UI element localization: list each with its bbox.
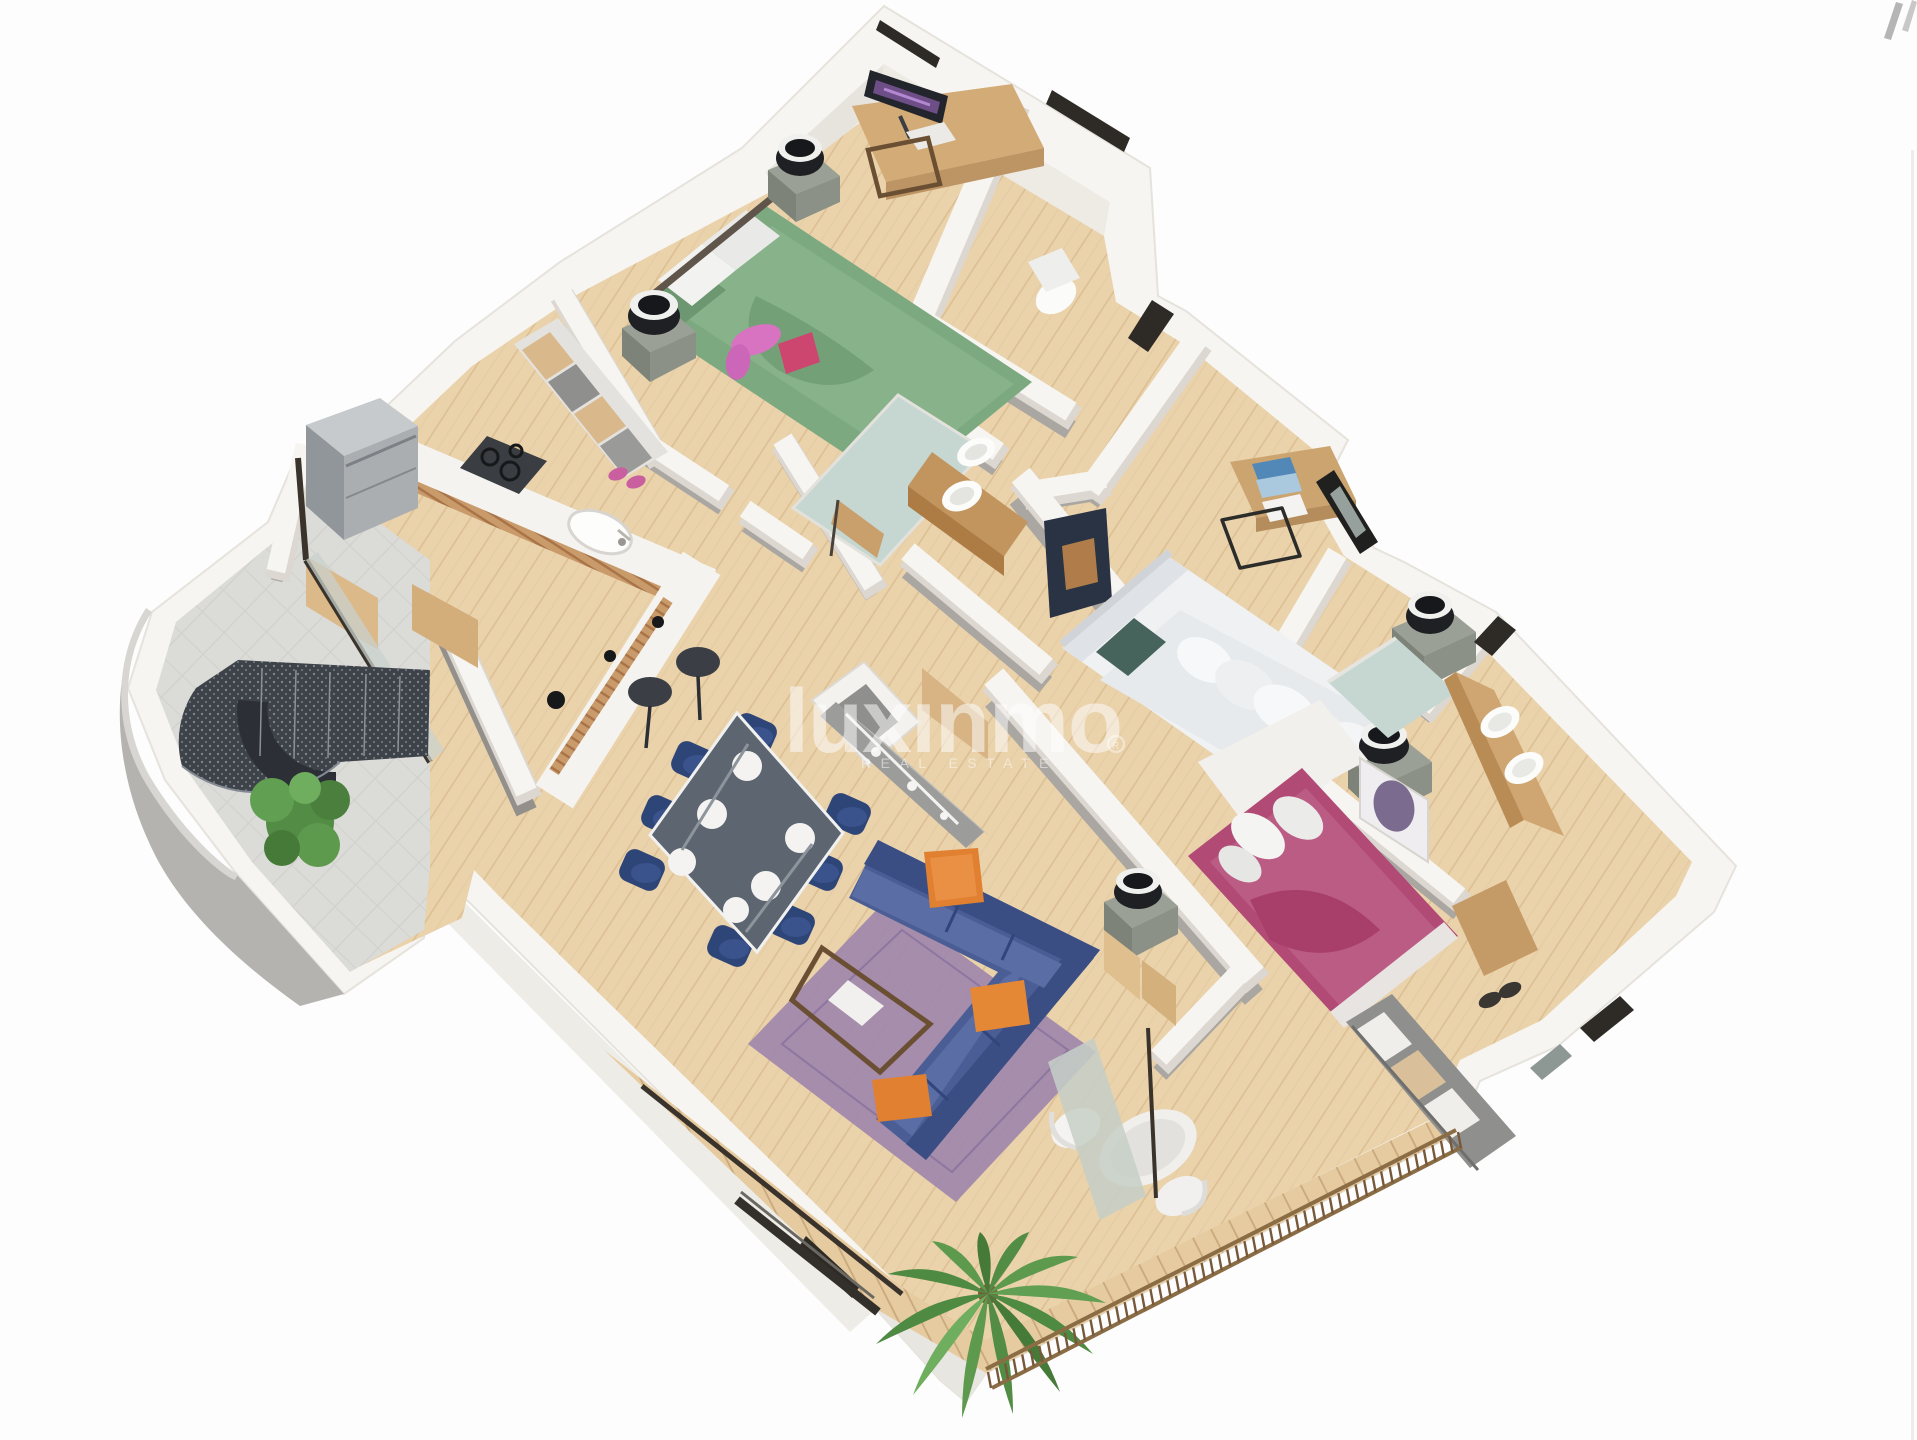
svg-text:R: R [1112, 741, 1119, 752]
svg-text:REAL ESTATE: REAL ESTATE [861, 755, 1058, 771]
